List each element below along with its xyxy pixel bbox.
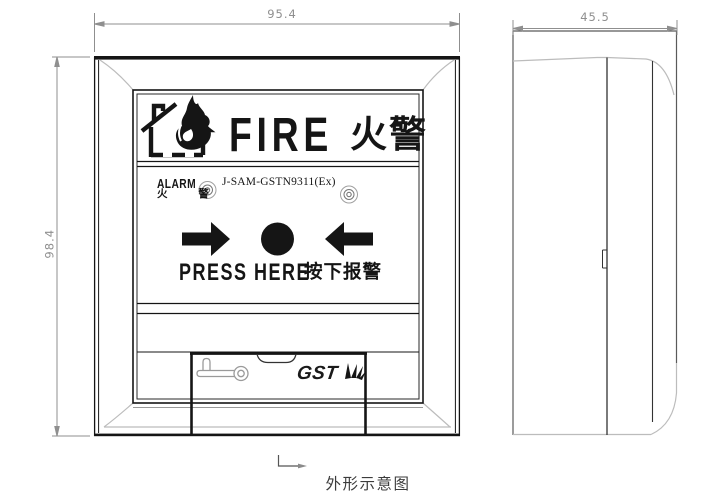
fire-label-en: FIRE	[229, 112, 333, 160]
drawing-linework	[0, 0, 716, 501]
round-press-button	[261, 223, 294, 256]
l-leader-arrow-icon	[279, 455, 308, 468]
front-bottom-edge	[94, 434, 460, 437]
figure-caption: 外形示意图	[320, 477, 416, 493]
outline-schematic-drawing: 95.4 45.5 98.4 FIRE 火警 ALARM 火 警 J-SAM-G…	[0, 0, 716, 501]
model-number: J-SAM-GSTN9311(Ex)	[222, 177, 336, 189]
dim-front-height	[52, 57, 90, 436]
front-top-edge	[94, 56, 460, 60]
brand-logo-text: GST	[296, 364, 339, 383]
press-here-label-zh: 按下报警	[304, 263, 382, 282]
press-here-label-en: PRESS HERE	[179, 261, 310, 285]
alarm-label-zh: 火 警	[157, 189, 223, 200]
fire-label-zh: 火警	[350, 116, 428, 153]
dim-label-height: 98.4	[44, 222, 56, 266]
dim-label-depth: 45.5	[573, 12, 617, 24]
dim-label-width: 95.4	[260, 9, 304, 21]
side-view-outline	[513, 31, 677, 435]
